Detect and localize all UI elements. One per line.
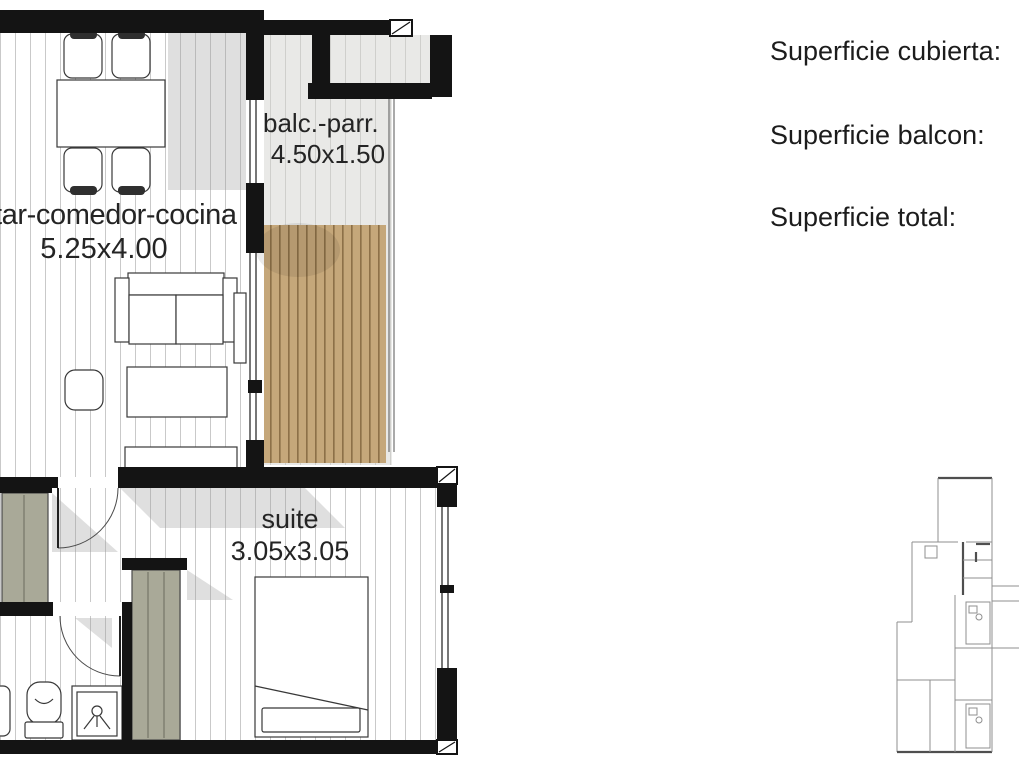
sink-vanity bbox=[72, 686, 122, 740]
summary-covered-surface-label: Superficie cubierta: bbox=[770, 36, 1001, 67]
summary-balcony-surface-label: Superficie balcon: bbox=[770, 120, 985, 151]
pouf bbox=[65, 370, 103, 410]
key-plan-drawing bbox=[888, 460, 1020, 760]
room-label-living: tar-comedor-cocina bbox=[0, 200, 237, 230]
balcony-wood-deck bbox=[256, 223, 386, 463]
room-dimensions-suite: 3.05x3.05 bbox=[200, 537, 380, 565]
toilet bbox=[25, 682, 63, 738]
key-plan-mini-map bbox=[888, 460, 1020, 760]
room-label-balcony: balc.-parr. bbox=[263, 110, 379, 137]
room-label-suite: suite bbox=[210, 505, 370, 533]
room-dimensions-living: 5.25x4.00 bbox=[14, 234, 194, 264]
apartment-floor-plan: tar-comedor-cocina 5.25x4.00 balc.-parr.… bbox=[0, 0, 460, 768]
coffee-table bbox=[127, 367, 227, 417]
summary-total-surface-label: Superficie total: bbox=[770, 202, 956, 233]
bidet bbox=[0, 686, 10, 736]
floor-plan-drawing bbox=[0, 0, 460, 768]
room-dimensions-balcony: 4.50x1.50 bbox=[258, 141, 398, 168]
floor-plan-page: tar-comedor-cocina 5.25x4.00 balc.-parr.… bbox=[0, 0, 1024, 768]
sofa bbox=[115, 273, 237, 344]
window-shelf bbox=[234, 293, 246, 363]
bed bbox=[255, 577, 368, 737]
